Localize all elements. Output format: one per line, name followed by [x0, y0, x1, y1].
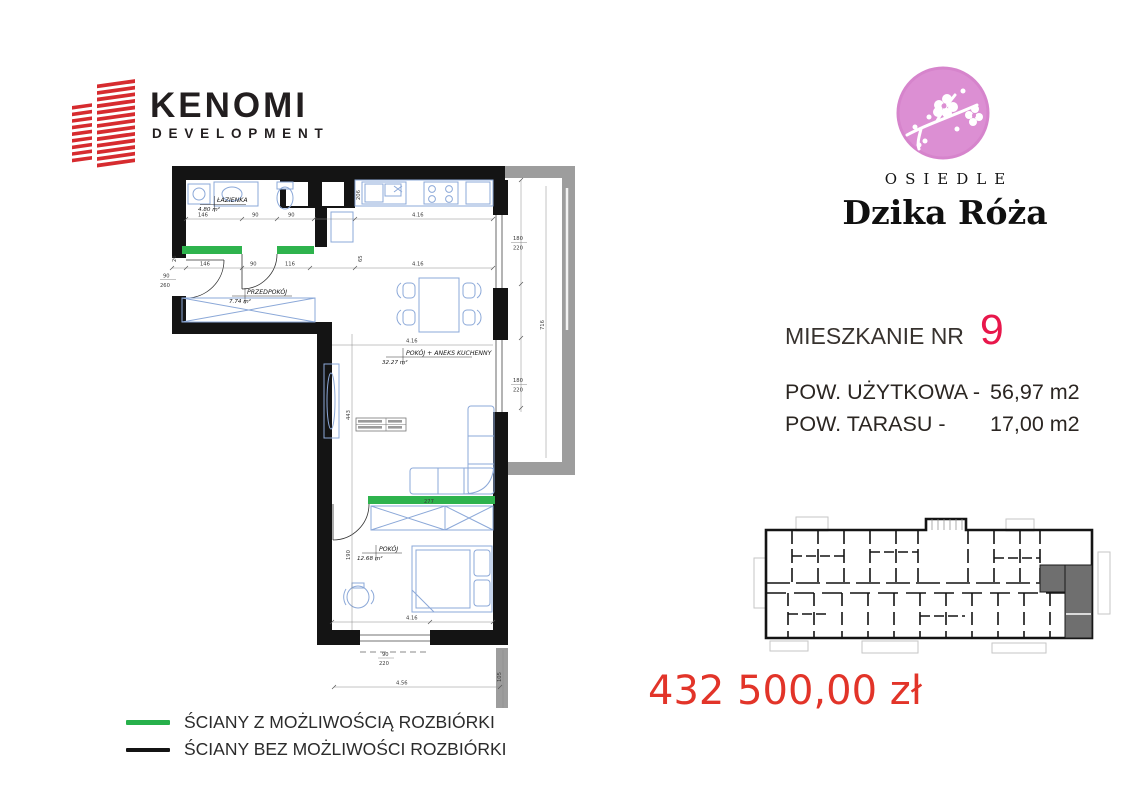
- dimension-label: 90: [163, 274, 170, 280]
- dimension-label: 90: [252, 213, 259, 219]
- dimension-label: 90: [382, 652, 389, 658]
- dimension-label: 190: [346, 550, 352, 560]
- dimension-label: 105: [497, 672, 503, 682]
- spec-label: POW. UŻYTKOWA -: [785, 380, 990, 405]
- room-label: PRZEDPOKÓJ: [247, 287, 287, 296]
- room-label: POKÓJ + ANEKS KUCHENNY: [406, 348, 493, 357]
- room-area: 7.74 m²: [229, 298, 252, 305]
- room-area: 12.68 m²: [357, 555, 383, 562]
- fixed-wall-swatch: [126, 748, 170, 752]
- legend-label: ŚCIANY BEZ MOŻLIWOŚCI ROZBIÓRKI: [184, 739, 507, 760]
- estate-flower-icon: [895, 65, 991, 161]
- dining-set: [397, 278, 481, 332]
- kitchen-fixtures: [355, 180, 493, 206]
- dimension-label: 116: [285, 262, 295, 268]
- drawing-stamp: [356, 418, 406, 431]
- dimension-label: 443: [346, 410, 352, 420]
- stairwell-hatch: [932, 519, 962, 530]
- room-label: POKÓJ: [379, 544, 398, 553]
- brand-name: KENOMI: [150, 86, 308, 126]
- brand-building-icon: [72, 74, 148, 170]
- dimension-label: 206: [356, 190, 362, 200]
- spec-value: 56,97 m2: [990, 380, 1080, 405]
- dimension-label: 4.56: [396, 681, 408, 687]
- dimension-label: 4.16: [406, 616, 418, 622]
- dimension-label: 4.16: [412, 213, 424, 219]
- dimension-label: 260: [160, 283, 170, 289]
- living-room-furniture: [324, 364, 494, 494]
- brand-subtitle: DEVELOPMENT: [152, 126, 330, 141]
- wardrobe: [371, 506, 493, 530]
- icon-right-tower: [97, 79, 135, 167]
- apartment-number: 9: [980, 306, 1004, 355]
- dimension-label: 220: [513, 246, 523, 252]
- dimension-label: 90: [250, 262, 257, 268]
- apartment-specs: POW. UŻYTKOWA - 56,97 m2 POW. TARASU - 1…: [785, 380, 1080, 437]
- legend-item: ŚCIANY BEZ MOŻLIWOŚCI ROZBIÓRKI: [126, 739, 507, 760]
- dimension-label: 26: [172, 255, 178, 262]
- room-label: ŁAZIENKA: [216, 197, 248, 204]
- dimension-label: 4.16: [406, 339, 418, 345]
- room-area: 32.27 m²: [382, 359, 408, 366]
- estate-name: Dzika Róża: [840, 193, 1050, 232]
- apartment-label: MIESZKANIE NR: [785, 323, 964, 350]
- spec-label: POW. TARASU -: [785, 412, 990, 437]
- dimension-label: 220: [379, 661, 389, 667]
- room-labels: ŁAZIENKA 4.80 m² PRZEDPOKÓJ 7.74 m² POKÓ…: [198, 196, 493, 562]
- removable-wall-swatch: [126, 720, 170, 725]
- apartment-title: MIESZKANIE NR 9: [785, 306, 1004, 355]
- dimension-label: 146: [200, 262, 210, 268]
- dimension-label: 716: [540, 320, 546, 330]
- floor-plan: 146 90 90 4.16 206 146 90 116 4.16 65 4.…: [150, 150, 630, 720]
- dimension-label: 146: [198, 213, 208, 219]
- dimension-label: 65: [358, 255, 364, 262]
- room-area: 4.80 m²: [198, 206, 221, 213]
- spec-value: 17,00 m2: [990, 412, 1080, 437]
- dimension-label: 277: [424, 499, 434, 505]
- furniture: [182, 180, 494, 612]
- estate-label: OSIEDLE: [855, 170, 1035, 188]
- dimension-label: 4.16: [412, 262, 424, 268]
- doors: [186, 254, 369, 540]
- icon-left-tower: [72, 103, 92, 162]
- highlighted-unit: [1040, 565, 1092, 638]
- dimension-label: 220: [513, 388, 523, 394]
- dimension-label: 180: [513, 236, 523, 242]
- dimension-label: 180: [513, 378, 523, 384]
- dimension-lines: [160, 180, 546, 708]
- dimension-label: 90: [288, 213, 295, 219]
- bedroom-door: [333, 504, 369, 540]
- bathroom-door: [242, 254, 277, 289]
- price: 432 500,00 zł: [648, 668, 922, 714]
- building-overview: [740, 505, 1132, 665]
